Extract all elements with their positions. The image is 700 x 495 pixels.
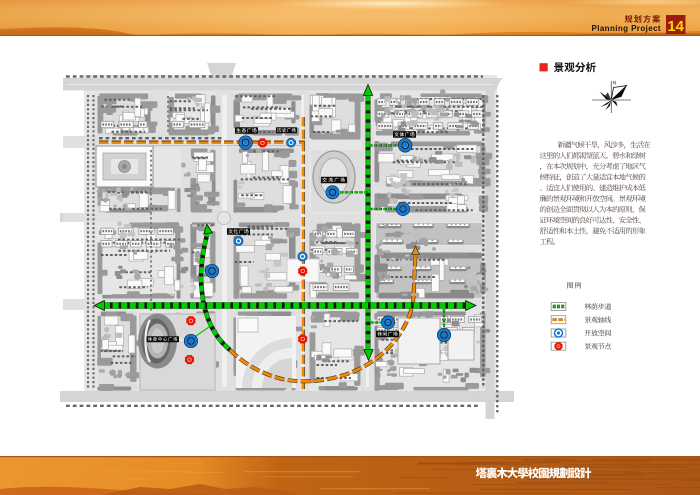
svg-text:Planning Project: Planning Project xyxy=(591,24,661,33)
svg-text:14: 14 xyxy=(667,18,684,35)
